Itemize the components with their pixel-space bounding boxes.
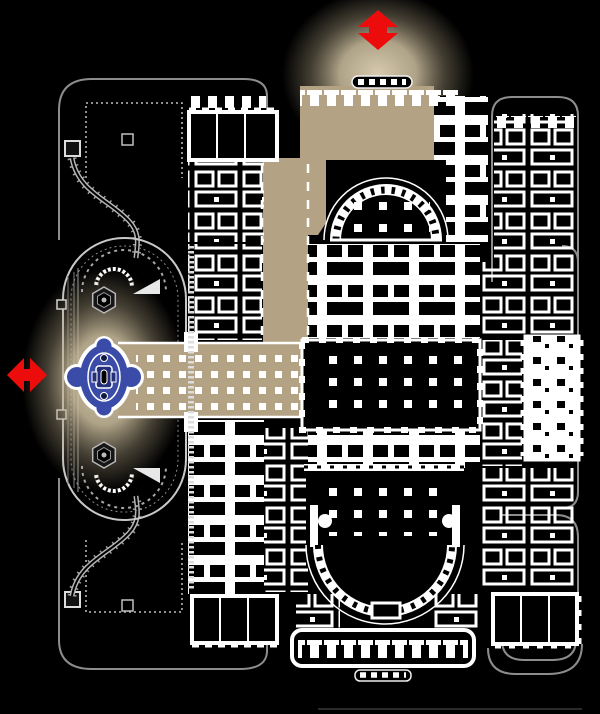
east-inner-wing [480,340,522,466]
southwest-wing [188,420,264,594]
hex-planter-south [93,442,116,468]
north-semicircular-chamber [324,160,448,242]
route-central-corridor [263,158,308,346]
south-corridor-wing [264,428,308,592]
east-mid-wing [480,262,578,338]
floor-plan-stage [0,0,600,714]
mid-left-wing [188,244,262,340]
east-front-block [523,336,581,460]
east-lower-wing [480,468,578,586]
mid-center-wing [308,244,480,338]
southwest-block [192,596,277,645]
south-flank-left-rooms [296,594,340,628]
southeast-block [493,594,579,646]
south-center-wing [308,428,480,468]
hex-planter-north [93,287,116,313]
northeast-wing [494,114,578,264]
crypt-column-grid [302,340,480,430]
south-flank-right-rooms [430,594,478,628]
northwest-block [188,96,277,160]
northwest-wing [188,162,264,242]
